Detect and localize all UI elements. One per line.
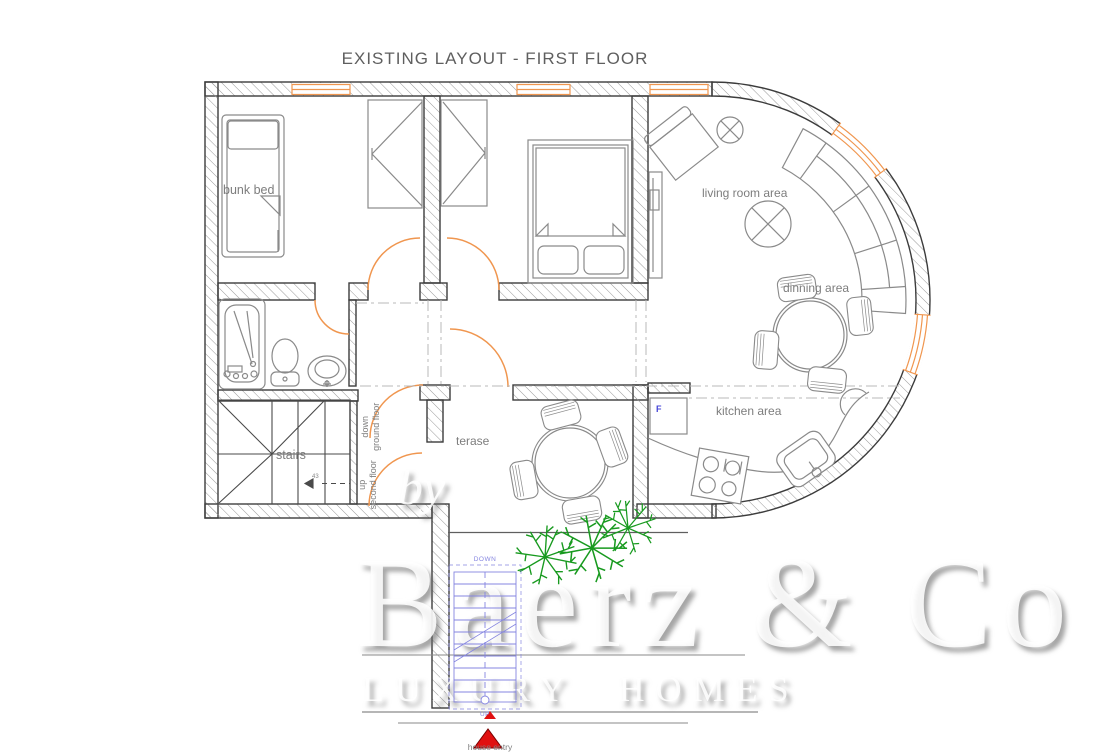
house-entry-label: house entry bbox=[458, 742, 522, 752]
exterior-stairs bbox=[449, 565, 521, 709]
overlay-drawing bbox=[0, 0, 1105, 756]
exterior-stair-up-label: UP bbox=[474, 711, 496, 718]
floor-plan-page: EXISTING LAYOUT - FIRST FLOOR bunk bed s… bbox=[0, 0, 1105, 756]
plants bbox=[516, 489, 665, 589]
exterior-stair-down-label: DOWN bbox=[462, 556, 508, 563]
